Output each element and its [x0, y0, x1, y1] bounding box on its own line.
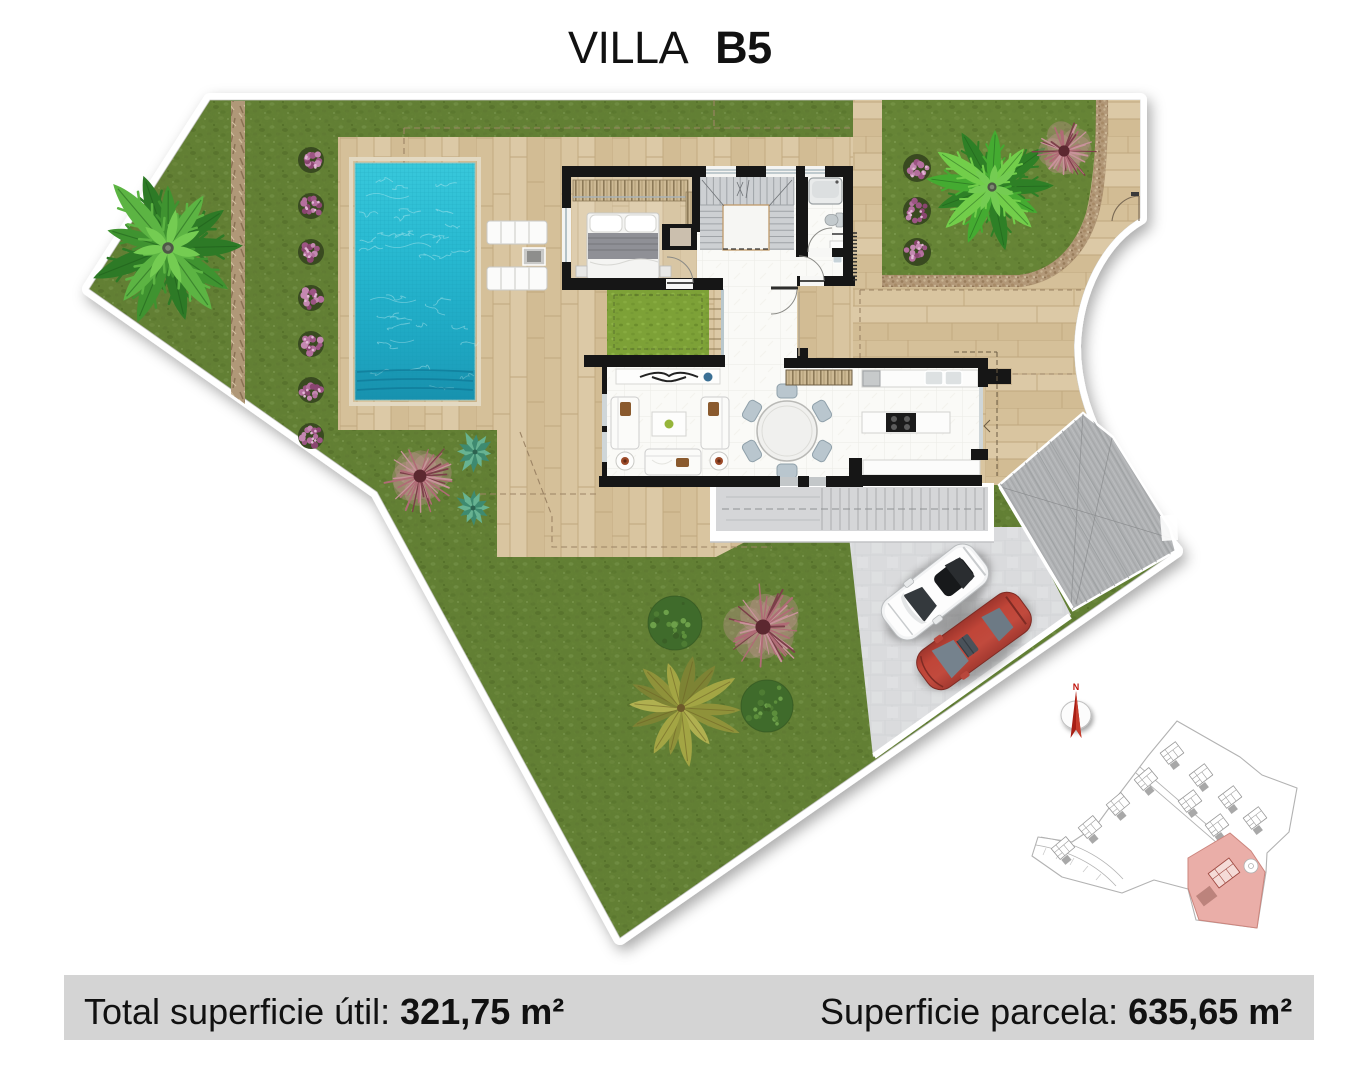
- svg-text:VILLAB5: VILLAB5: [568, 22, 772, 73]
- svg-text:Total superficie útil: 321,75: Total superficie útil: 321,75 m²: [84, 991, 564, 1032]
- svg-text:N: N: [1073, 682, 1080, 692]
- svg-text:Superficie parcela: 635,65 m²: Superficie parcela: 635,65 m²: [820, 991, 1292, 1032]
